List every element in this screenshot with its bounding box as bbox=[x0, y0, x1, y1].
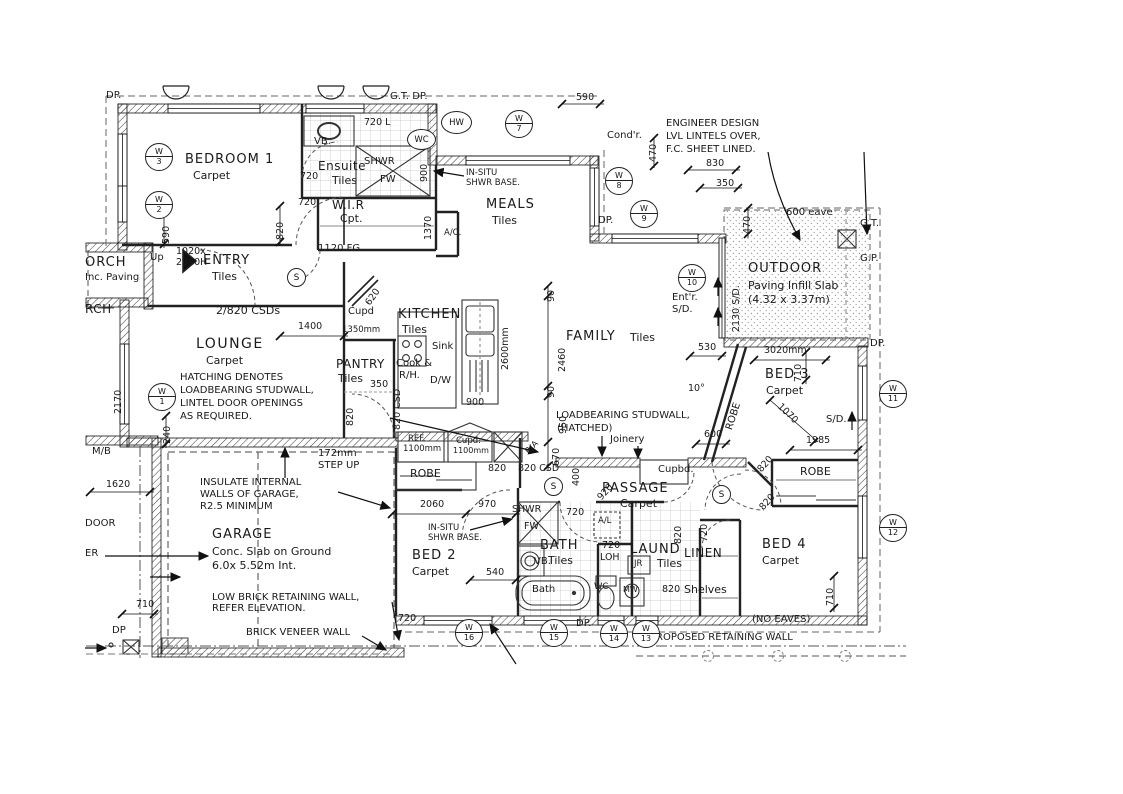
cooktop-label-2: R/H. bbox=[399, 370, 420, 381]
room-label-entry: ENTRY bbox=[203, 254, 250, 268]
note-outdoor-2: (4.32 x 3.37m) bbox=[748, 294, 830, 306]
room-label-passage: PASSAGE bbox=[602, 482, 669, 496]
note-step-2: STEP UP bbox=[318, 460, 359, 471]
dim-1370: 1370 bbox=[424, 216, 434, 240]
dim-470-outdoor: 470 bbox=[743, 216, 753, 234]
note-step-1: 172mm bbox=[318, 448, 357, 459]
dim-2170: 2170 bbox=[114, 390, 124, 414]
dim-350-pantry: 350 bbox=[370, 380, 388, 390]
note-engineer-2: LVL LINTELS OVER, bbox=[666, 131, 761, 142]
dim-3020: 3020mm bbox=[764, 346, 807, 356]
dim-900-kitchen: 900 bbox=[466, 398, 484, 408]
dim-970: 970 bbox=[478, 500, 496, 510]
dim-720-ensuite: 720 bbox=[300, 172, 318, 182]
robe-label-bed4: ROBE bbox=[800, 466, 831, 478]
dim-90-b: 90 bbox=[547, 386, 557, 398]
floorplan-sheet: DP. G.T. DP. BEDROOM 1 Carpet 590 820 21… bbox=[0, 0, 1123, 794]
floor-label-bedroom1: Carpet bbox=[193, 170, 230, 182]
window-marker-w12: W12 bbox=[879, 514, 907, 542]
robe-label-bed2: ROBE bbox=[410, 468, 441, 480]
dim-2600: 2600mm bbox=[501, 327, 511, 370]
dim-2060: 2060 bbox=[420, 500, 444, 510]
room-label-porch-2: RCH bbox=[85, 303, 112, 316]
note-loadbearing-2: (HATCHED) bbox=[557, 423, 612, 434]
floor-label-meals: Tiles bbox=[492, 215, 517, 227]
window-marker-number: 10 bbox=[679, 277, 705, 287]
floor-label-passage: Carpet bbox=[620, 498, 657, 510]
note-garage-1: Conc. Slab on Ground bbox=[212, 546, 331, 558]
room-label-lounge: LOUNGE bbox=[196, 337, 264, 352]
dim-720-garage-end: 720 bbox=[398, 614, 416, 624]
dim-820-laund: 820 bbox=[662, 585, 680, 595]
window-marker-letter: W bbox=[158, 388, 166, 396]
dim-2460: 2460 bbox=[558, 348, 568, 372]
note-engineer-1: ENGINEER DESIGN bbox=[666, 118, 759, 129]
note-insitu-meals-1: IN-SITU bbox=[466, 169, 497, 178]
room-label-porch: ORCH bbox=[85, 256, 126, 270]
ac-label: A/C. bbox=[444, 229, 461, 238]
note-insulate-2: WALLS OF GARAGE, bbox=[200, 489, 299, 500]
window-marker-number: 11 bbox=[880, 393, 906, 403]
cupboard-label-entry: Cupd bbox=[348, 306, 374, 317]
window-marker-w9: W9 bbox=[630, 200, 658, 228]
jr-label: JR bbox=[634, 560, 642, 569]
window-marker-w15: W15 bbox=[540, 619, 568, 647]
room-label-family: FAMILY bbox=[566, 330, 616, 344]
gt-marker-outdoor: G.T. bbox=[860, 218, 879, 229]
wc-symbol-ensuite: WC bbox=[407, 129, 436, 150]
floor-label-lounge: Carpet bbox=[206, 355, 243, 367]
note-linen-shelves: Shelves bbox=[684, 584, 727, 596]
dim-820csd-robe: 820 CSD bbox=[518, 464, 559, 474]
room-label-bed3: BED 3 bbox=[765, 368, 810, 382]
window-marker-number: 1 bbox=[149, 396, 175, 406]
cut-window-markers bbox=[163, 86, 389, 99]
note-lowbrick-2: REFER ELEVATION. bbox=[212, 603, 306, 614]
dim-1400: 1400 bbox=[298, 322, 322, 332]
window-marker-letter: W bbox=[465, 624, 473, 632]
window-marker-number: 9 bbox=[631, 213, 657, 223]
note-hatching-2: LOADBEARING STUDWALL, bbox=[180, 385, 314, 396]
note-hatching-1: HATCHING DENOTES bbox=[180, 372, 283, 383]
dim-710-garage: 710 bbox=[136, 600, 154, 610]
note-insulate-3: R2.5 MINIMUM bbox=[200, 501, 273, 512]
room-label-laund: LAUND bbox=[630, 543, 681, 557]
dim-2130-sd: 2130 S/D. bbox=[732, 285, 742, 332]
note-hatching-3: LINTEL DOOR OPENINGS bbox=[180, 398, 303, 409]
dp-marker-topleft: DP. bbox=[106, 90, 121, 101]
dim-720-bath: 720 bbox=[566, 508, 584, 518]
dp-marker-meals: DP. bbox=[598, 215, 613, 226]
window-marker-w7: W7 bbox=[505, 110, 533, 138]
note-insitu-bed2-1: IN-SITU bbox=[428, 524, 459, 533]
window-marker-letter: W bbox=[155, 148, 163, 156]
note-outdoor-1: Paving Infill Slab bbox=[748, 280, 838, 292]
room-label-bed4: BED 4 bbox=[762, 538, 807, 552]
note-retaining-wall: PROPOSED RETAINING WALL bbox=[650, 632, 793, 643]
window-marker-letter: W bbox=[688, 269, 696, 277]
shower-label-bath: SHWR bbox=[512, 505, 541, 515]
window-marker-letter: W bbox=[640, 205, 648, 213]
window-marker-w14: W14 bbox=[600, 620, 628, 648]
floor-label-wir: Cpt. bbox=[340, 213, 362, 225]
room-label-meals: MEALS bbox=[486, 198, 535, 212]
note-csds: 2/820 CSDs bbox=[216, 305, 280, 317]
note-insulate-1: INSULATE INTERNAL bbox=[200, 477, 301, 488]
note-1120fg: 1120 FG bbox=[318, 243, 360, 254]
dim-590-bed1: 590 bbox=[162, 226, 172, 244]
room-label-bath: BATH bbox=[540, 539, 579, 553]
dim-720-wir: 720 bbox=[298, 198, 316, 208]
room-label-bed2: BED 2 bbox=[412, 549, 457, 563]
window-marker-number: 12 bbox=[880, 527, 906, 537]
window-marker-letter: W bbox=[610, 625, 618, 633]
smoke-detector-passage: S bbox=[712, 485, 731, 504]
window-marker-number: 7 bbox=[506, 123, 532, 133]
floor-label-ensuite: Tiles bbox=[332, 175, 357, 187]
linen-al-label: A/L bbox=[598, 517, 611, 526]
note-brickveneer: BRICK VENEER WALL bbox=[246, 627, 350, 638]
room-label-wir: W.I.R bbox=[332, 199, 365, 212]
note-door-1020a: 1020x bbox=[176, 247, 206, 257]
er-label-left: ER bbox=[85, 548, 98, 559]
note-noeaves: (NO EAVES) bbox=[752, 614, 810, 625]
condenser-label: Cond'r. bbox=[607, 130, 642, 141]
floor-label-laund: Tiles bbox=[657, 558, 682, 570]
room-label-bedroom1: BEDROOM 1 bbox=[185, 153, 274, 167]
note-joinery: Joinery bbox=[610, 434, 644, 445]
cupboard-label-passage: Cupbd. bbox=[658, 464, 694, 475]
floor-label-porch: Inc. Paving bbox=[85, 272, 139, 283]
floor-label-entry: Tiles bbox=[212, 271, 237, 283]
dim-830: 830 bbox=[706, 159, 724, 169]
bathtub-label: Bath bbox=[532, 584, 555, 595]
dim-540: 540 bbox=[486, 568, 504, 578]
smoke-detector-entry: S bbox=[287, 268, 306, 287]
mw-label: MW bbox=[623, 586, 638, 595]
wc-label-bath: WC bbox=[594, 583, 608, 592]
dim-900-ensuite: 900 bbox=[420, 164, 430, 182]
room-label-garage: GARAGE bbox=[212, 528, 272, 542]
sd-marker-bed3: S/D. bbox=[826, 414, 847, 425]
room-label-outdoor: OUTDOOR bbox=[748, 262, 822, 276]
floor-label-pantry: Tiles bbox=[338, 373, 363, 385]
cupboard-kitchen-2: 1100mm bbox=[453, 447, 489, 456]
window-marker-w16: W16 bbox=[455, 619, 483, 647]
floor-label-bed2: Carpet bbox=[412, 566, 449, 578]
hw-unit-symbol: HW bbox=[441, 111, 472, 134]
dim-820-robe: 820 bbox=[488, 464, 506, 474]
entr-slider-label-2: S/D. bbox=[672, 304, 693, 315]
room-label-pantry: PANTRY bbox=[336, 358, 385, 371]
fridge-label-1: REF. bbox=[408, 435, 426, 444]
dim-90-a: 90 bbox=[547, 290, 557, 302]
dim-1620: 1620 bbox=[106, 480, 130, 490]
dim-530: 530 bbox=[698, 343, 716, 353]
window-marker-number: 15 bbox=[541, 632, 567, 642]
dim-820-laund-top: 820 bbox=[674, 526, 684, 544]
dim-350-meals: 350 bbox=[716, 179, 734, 189]
window-marker-w13: W13 bbox=[632, 620, 660, 648]
note-garage-2: 6.0x 5.52m Int. bbox=[212, 560, 296, 572]
dim-600: 600 bbox=[704, 430, 722, 440]
dp-marker-garage: DP bbox=[112, 625, 126, 636]
door-label-left: DOOR bbox=[85, 518, 115, 529]
gt-dp-marker-top: G.T. DP. bbox=[390, 91, 428, 102]
dim-240: 240 bbox=[163, 426, 173, 444]
note-up: Up bbox=[150, 252, 164, 263]
dim-820-pantry: 820 bbox=[346, 408, 356, 426]
dim-820csd-kitchen: 820 CSD bbox=[393, 389, 403, 430]
window-marker-w8: W8 bbox=[605, 167, 633, 195]
dim-400: 400 bbox=[572, 468, 582, 486]
window-marker-number: 14 bbox=[601, 633, 627, 643]
window-marker-w10: W10 bbox=[678, 264, 706, 292]
dim-470-meals: 470 bbox=[649, 144, 659, 162]
floor-label-kitchen: Tiles bbox=[402, 324, 427, 336]
note-loadbearing-1: LOADBEARING STUDWALL, bbox=[556, 410, 690, 421]
note-hatching-4: AS REQUIRED. bbox=[180, 411, 252, 422]
dim-720-loh-1: 720 bbox=[602, 541, 620, 551]
window-marker-w1: W1 bbox=[148, 383, 176, 411]
vanity-basin-label-ensuite: VB. bbox=[314, 136, 331, 147]
window-marker-number: 8 bbox=[606, 180, 632, 190]
dim-720-loh-2: LOH bbox=[600, 553, 620, 563]
dim-1985: 1985 bbox=[806, 436, 830, 446]
room-label-kitchen: KITCHEN bbox=[398, 308, 461, 322]
mb-marker: M/B bbox=[92, 446, 111, 457]
dim-720-linen: 720 bbox=[700, 524, 710, 542]
cupboard-kitchen-1: Cupd. bbox=[456, 437, 481, 446]
window-marker-w11: W11 bbox=[879, 380, 907, 408]
window-marker-letter: W bbox=[642, 625, 650, 633]
window-marker-number: 13 bbox=[633, 633, 659, 643]
room-label-ensuite: Ensuite bbox=[318, 160, 366, 173]
window-marker-w3: W3 bbox=[145, 143, 173, 171]
floor-label-bed3: Carpet bbox=[766, 385, 803, 397]
window-marker-letter: W bbox=[155, 196, 163, 204]
dim-1350: 1350mm bbox=[342, 326, 380, 335]
floor-label-bath: Tiles bbox=[548, 555, 573, 567]
dim-10deg: 10° bbox=[688, 384, 705, 394]
dp-marker-outdoor: DP. bbox=[870, 338, 885, 349]
window-marker-letter: W bbox=[550, 624, 558, 632]
window-marker-number: 16 bbox=[456, 632, 482, 642]
window-marker-letter: W bbox=[515, 115, 523, 123]
note-insitu-meals-2: SHWR BASE. bbox=[466, 179, 520, 188]
floor-label-family: Tiles bbox=[630, 332, 655, 344]
room-label-linen: LINEN bbox=[684, 547, 722, 560]
shower-label-ensuite: SHWR bbox=[364, 156, 395, 167]
dim-820-bed1-door: 820 bbox=[276, 222, 286, 240]
window-marker-number: 3 bbox=[146, 156, 172, 166]
sink-label: Sink bbox=[432, 341, 453, 352]
gp-marker-outdoor: G.P. bbox=[860, 253, 879, 264]
note-insitu-bed2-2: SHWR BASE. bbox=[428, 534, 482, 543]
cooktop-label-1: Cook & bbox=[396, 358, 432, 369]
dishwasher-label: D/W bbox=[430, 375, 451, 386]
fridge-label-2: 1100mm bbox=[403, 445, 441, 454]
dp-marker-bottom: DP. bbox=[576, 618, 591, 629]
window-marker-number: 2 bbox=[146, 204, 172, 214]
window-marker-letter: W bbox=[889, 519, 897, 527]
window-marker-letter: W bbox=[889, 385, 897, 393]
note-lowbrick-1: LOW BRICK RETAINING WALL, bbox=[212, 592, 359, 603]
dim-590-top: 590 bbox=[576, 93, 594, 103]
window-marker-w2: W2 bbox=[145, 191, 173, 219]
note-engineer-3: F.C. SHEET LINED. bbox=[666, 144, 756, 155]
note-eave-600: 600 eave bbox=[786, 207, 833, 218]
floorwaste-label-ensuite: FW bbox=[380, 174, 396, 185]
window-marker-letter: W bbox=[615, 172, 623, 180]
floor-label-bed4: Carpet bbox=[762, 555, 799, 567]
floorwaste-label-bath: FW bbox=[524, 522, 539, 532]
dim-720L: 720 L bbox=[364, 118, 390, 128]
smoke-detector-hall: S bbox=[544, 477, 563, 496]
entr-slider-label-1: Ent'r. bbox=[672, 292, 698, 303]
dim-710-bed4: 710 bbox=[826, 588, 836, 606]
